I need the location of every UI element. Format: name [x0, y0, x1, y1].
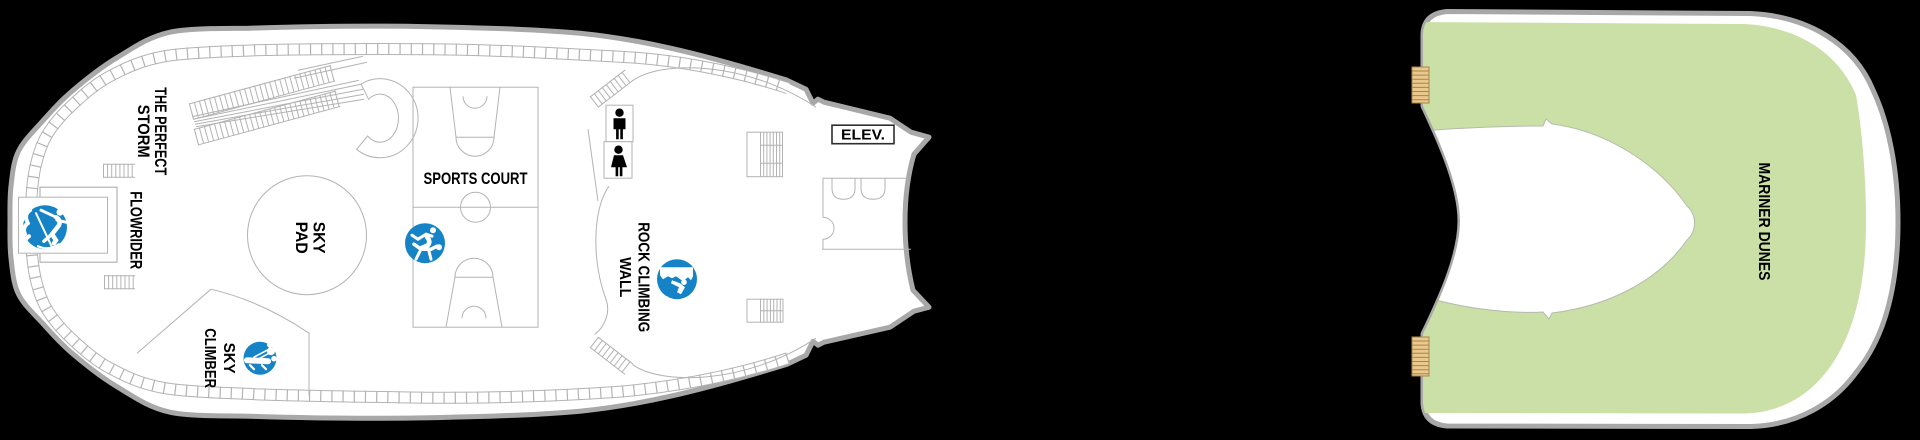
svg-text:SKY: SKY	[310, 222, 329, 255]
svg-text:FLOWRIDER: FLOWRIDER	[127, 191, 146, 269]
svg-text:ELEV.: ELEV.	[841, 127, 885, 144]
svg-text:MARINER DUNES: MARINER DUNES	[1755, 163, 1772, 281]
svg-text:CLIMBER: CLIMBER	[201, 328, 218, 388]
svg-text:STORM: STORM	[134, 105, 153, 158]
svg-text:PAD: PAD	[292, 222, 311, 254]
svg-text:WALL: WALL	[616, 257, 633, 297]
svg-text:ROCK CLIMBING: ROCK CLIMBING	[635, 222, 652, 332]
svg-text:SKY: SKY	[220, 343, 237, 374]
svg-text:SPORTS COURT: SPORTS COURT	[424, 169, 528, 188]
